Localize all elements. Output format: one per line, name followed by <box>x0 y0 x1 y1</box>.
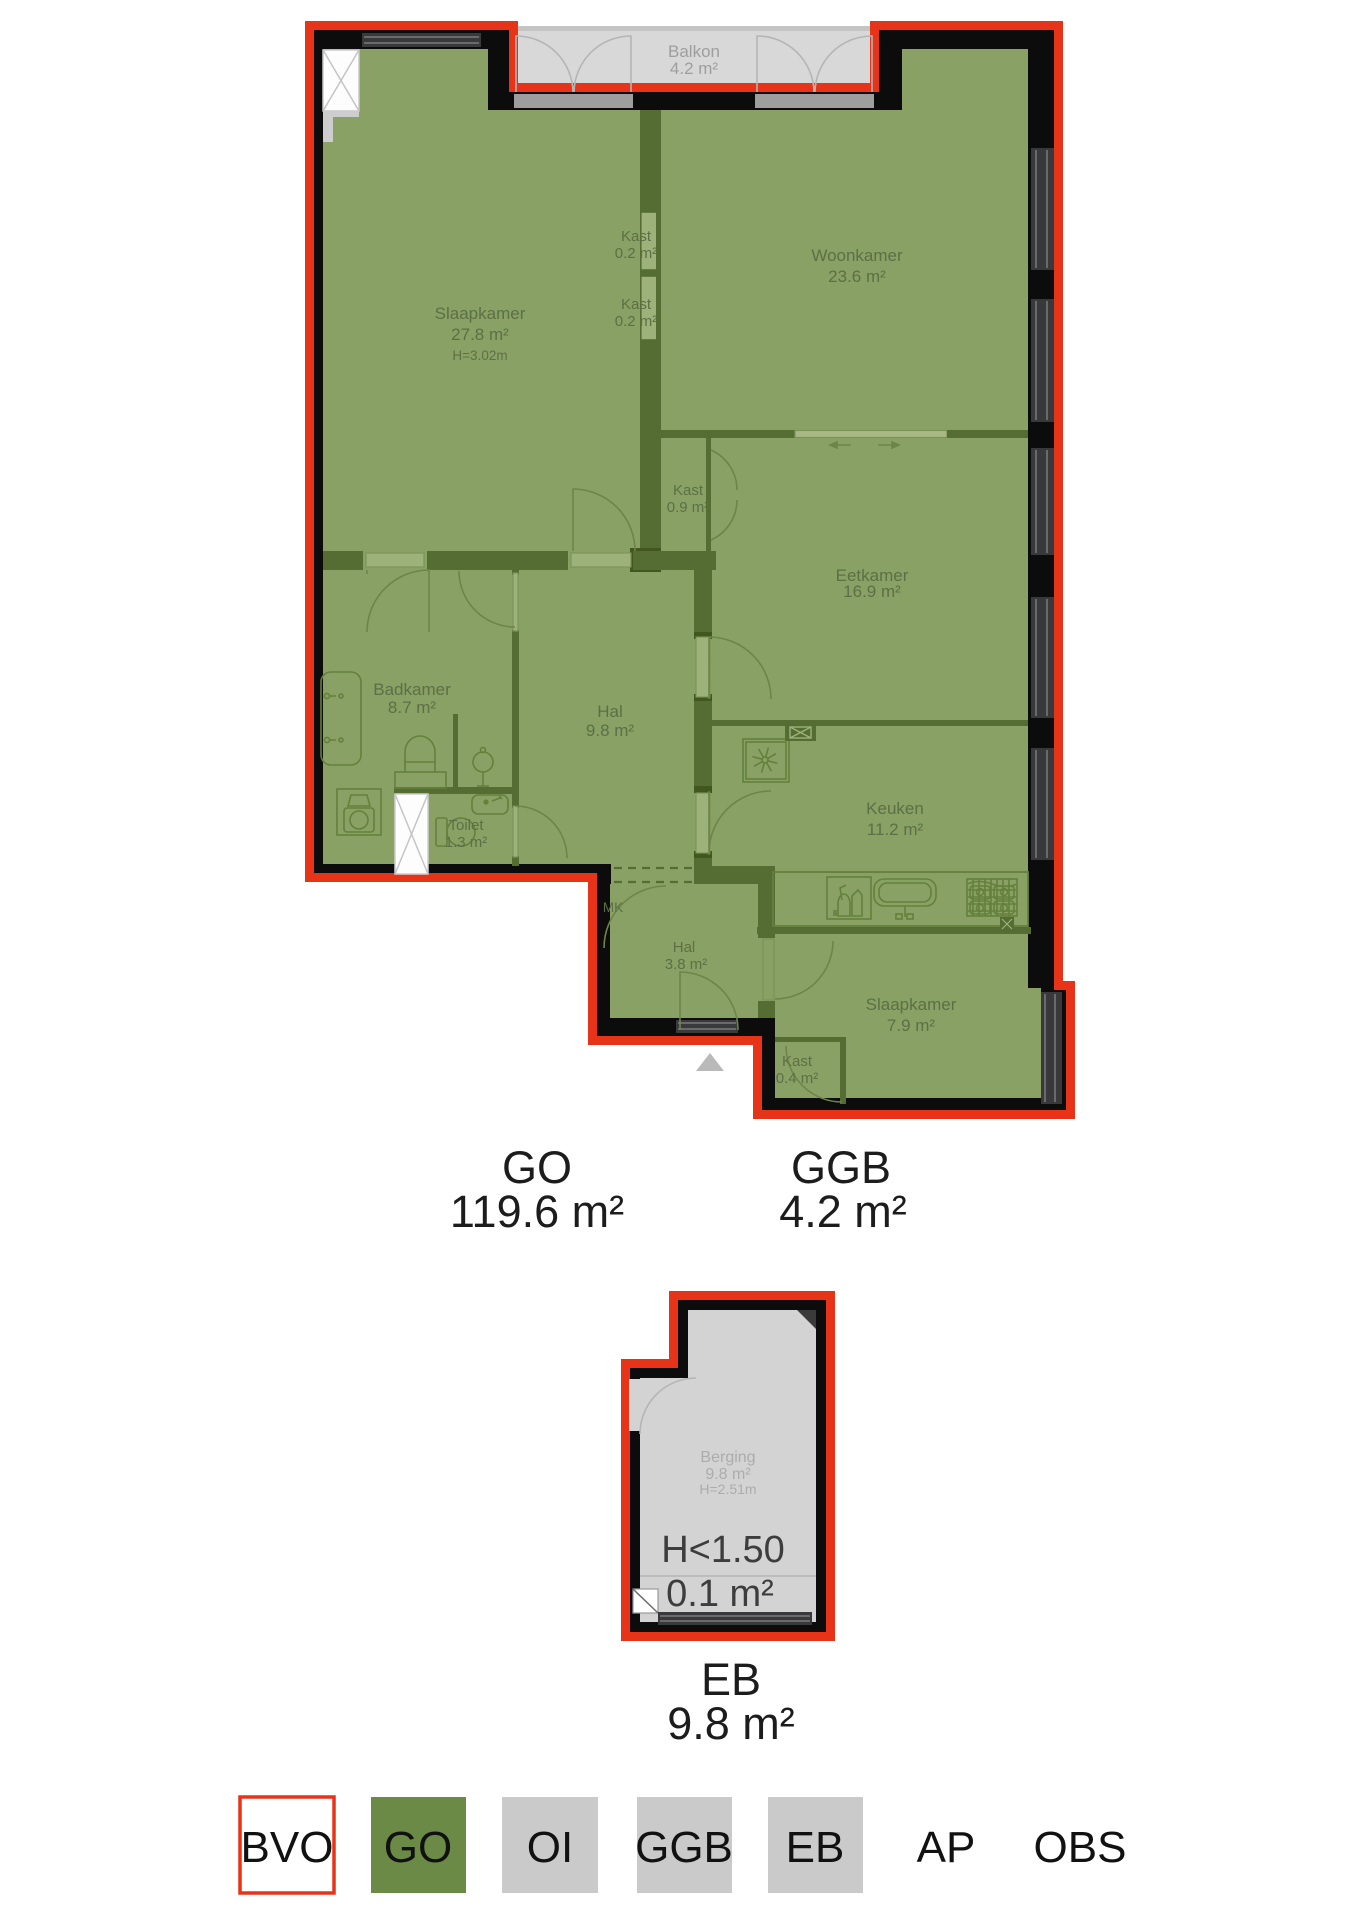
svg-text:AP: AP <box>917 1823 976 1872</box>
svg-text:OI: OI <box>527 1823 573 1872</box>
svg-text:0.2 m²: 0.2 m² <box>615 245 658 262</box>
svg-text:9.8 m²: 9.8 m² <box>667 1698 795 1749</box>
svg-text:Woonkamer: Woonkamer <box>811 246 903 265</box>
svg-text:H<1.50: H<1.50 <box>661 1529 785 1571</box>
svg-text:Keuken: Keuken <box>866 799 924 818</box>
svg-text:16.9 m²: 16.9 m² <box>843 582 901 601</box>
svg-text:H=2.51m: H=2.51m <box>699 1481 756 1497</box>
svg-text:23.6 m²: 23.6 m² <box>828 267 886 286</box>
svg-text:4.2 m²: 4.2 m² <box>779 1186 907 1237</box>
svg-text:3.8 m²: 3.8 m² <box>665 956 708 973</box>
svg-text:4.2 m²: 4.2 m² <box>670 59 719 78</box>
svg-text:EB: EB <box>786 1823 845 1872</box>
svg-text:H=3.02m: H=3.02m <box>452 348 507 363</box>
svg-text:0.4 m²: 0.4 m² <box>776 1070 819 1087</box>
svg-text:Hal: Hal <box>597 702 623 721</box>
svg-text:Hal: Hal <box>673 939 696 956</box>
svg-text:GGB: GGB <box>635 1823 733 1872</box>
svg-text:0.9 m²: 0.9 m² <box>667 499 710 516</box>
svg-text:11.2 m²: 11.2 m² <box>867 820 924 839</box>
svg-text:Kast: Kast <box>782 1053 813 1070</box>
svg-text:Berging: Berging <box>700 1449 755 1466</box>
svg-text:GO: GO <box>384 1823 452 1872</box>
svg-text:OBS: OBS <box>1034 1823 1127 1872</box>
svg-text:9.8 m²: 9.8 m² <box>586 721 635 740</box>
svg-text:Badkamer: Badkamer <box>373 680 451 699</box>
svg-text:Slaapkamer: Slaapkamer <box>435 304 526 323</box>
svg-text:Slaapkamer: Slaapkamer <box>866 995 957 1014</box>
svg-text:BVO: BVO <box>241 1823 334 1872</box>
svg-text:Kast: Kast <box>621 296 652 313</box>
svg-text:Toilet: Toilet <box>448 817 484 834</box>
svg-text:7.9 m²: 7.9 m² <box>887 1016 936 1035</box>
svg-text:MK: MK <box>603 900 623 915</box>
svg-text:Kast: Kast <box>673 482 704 499</box>
svg-text:27.8 m²: 27.8 m² <box>451 325 509 344</box>
svg-text:Kast: Kast <box>621 228 652 245</box>
svg-text:0.1 m²: 0.1 m² <box>666 1573 774 1615</box>
svg-text:119.6 m²: 119.6 m² <box>450 1186 624 1237</box>
svg-text:8.7 m²: 8.7 m² <box>388 698 437 717</box>
svg-text:1.3 m²: 1.3 m² <box>445 834 488 851</box>
svg-text:0.2 m²: 0.2 m² <box>615 313 658 330</box>
